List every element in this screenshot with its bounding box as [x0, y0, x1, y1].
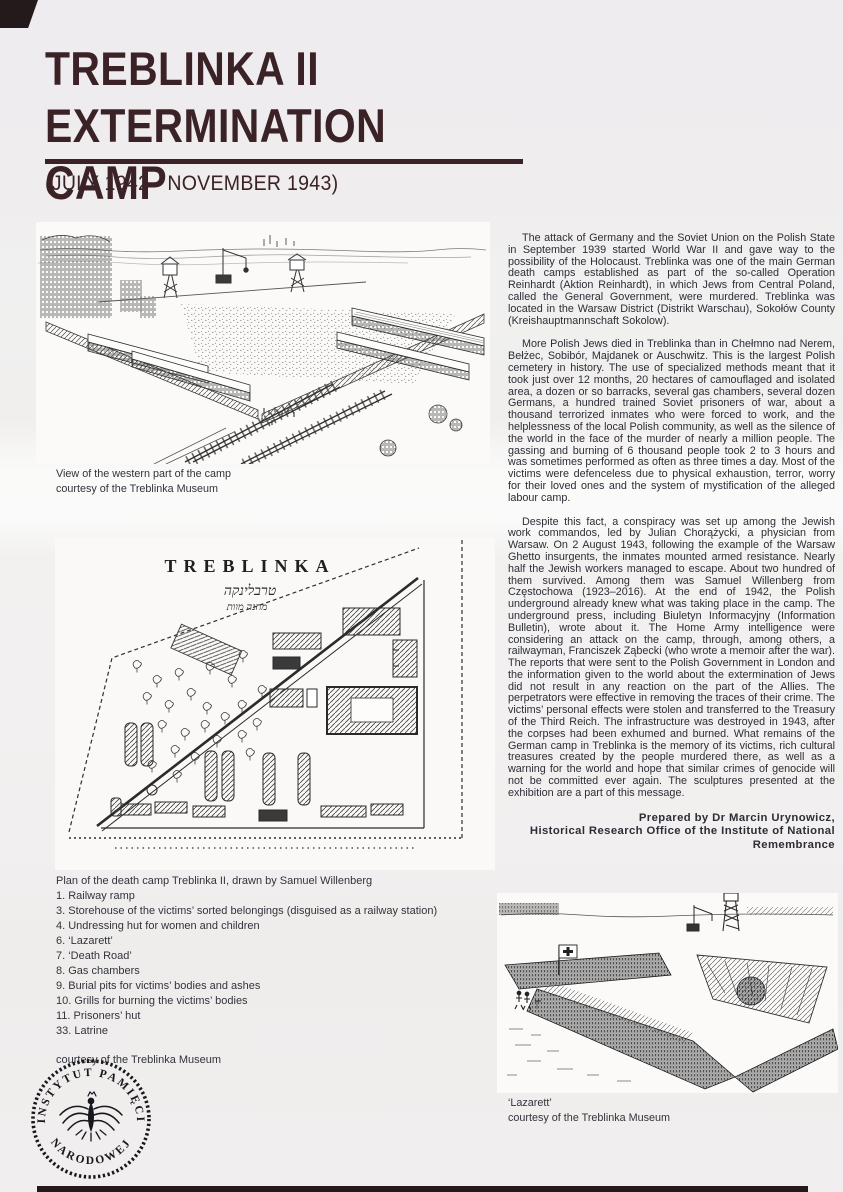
lazarett-caption: ‘Lazarett’ courtesy of the Treblinka Mus… [508, 1096, 670, 1125]
plan-legend-title: Plan of the death camp Treblinka II, dra… [56, 874, 491, 889]
map-title: TREBLINKA [164, 556, 335, 576]
article-paragraph-1: The attack of Germany and the Soviet Uni… [508, 233, 835, 327]
article-paragraph-3: Despite this fact, a conspiracy was set … [508, 517, 835, 800]
camp-aerial-drawing [36, 222, 490, 464]
map-hebrew-subtitle: מחנה מוות [226, 602, 268, 613]
camp-plan-illustration: TREBLINKA טרבלינקה מחנה מוות [55, 538, 495, 870]
aerial-caption: View of the western part of the camp cou… [56, 467, 231, 496]
plan-legend-items: 1. Railway ramp 3. Storehouse of the vic… [56, 889, 491, 1039]
eagle-icon [60, 1092, 122, 1141]
poster-page: TREBLINKA II EXTERMINATION CAMP (JULY 19… [0, 0, 843, 1192]
lazarett-illustration [497, 893, 838, 1093]
poster-subtitle: (JULY 1942 - NOVEMBER 1943) [45, 172, 338, 196]
article-credit: Prepared by Dr Marcin Urynowicz, Histori… [508, 812, 835, 853]
institute-seal-drawing: INSTYTUT PAMIĘCI NARODOWEJ [28, 1056, 154, 1182]
title-rule [45, 159, 523, 164]
article-paragraph-2: More Polish Jews died in Treblinka than … [508, 339, 835, 504]
bottom-bar [37, 1186, 808, 1192]
corner-mark [0, 0, 38, 28]
article-column: The attack of Germany and the Soviet Uni… [508, 233, 835, 852]
lazarett-drawing [497, 893, 838, 1093]
map-hebrew-name: טרבלינקה [224, 583, 277, 599]
camp-aerial-illustration [36, 222, 490, 464]
camp-plan-drawing: TREBLINKA טרבלינקה מחנה מוות [55, 538, 495, 870]
plan-legend: Plan of the death camp Treblinka II, dra… [56, 874, 491, 1068]
institute-seal: INSTYTUT PAMIĘCI NARODOWEJ [28, 1056, 154, 1182]
